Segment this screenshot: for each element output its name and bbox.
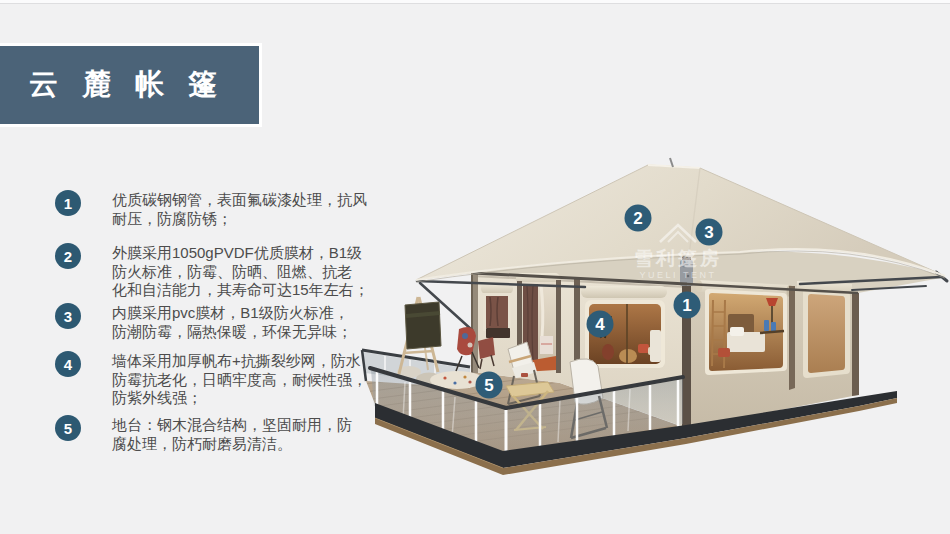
callout-marker-2: 2 — [625, 205, 652, 232]
callout-marker-5: 5 — [476, 372, 503, 399]
callout-marker-4: 4 — [587, 311, 614, 338]
callout-marker-1: 1 — [674, 292, 701, 319]
callout-marker-3: 3 — [696, 219, 723, 246]
tent-illustration — [0, 0, 950, 534]
